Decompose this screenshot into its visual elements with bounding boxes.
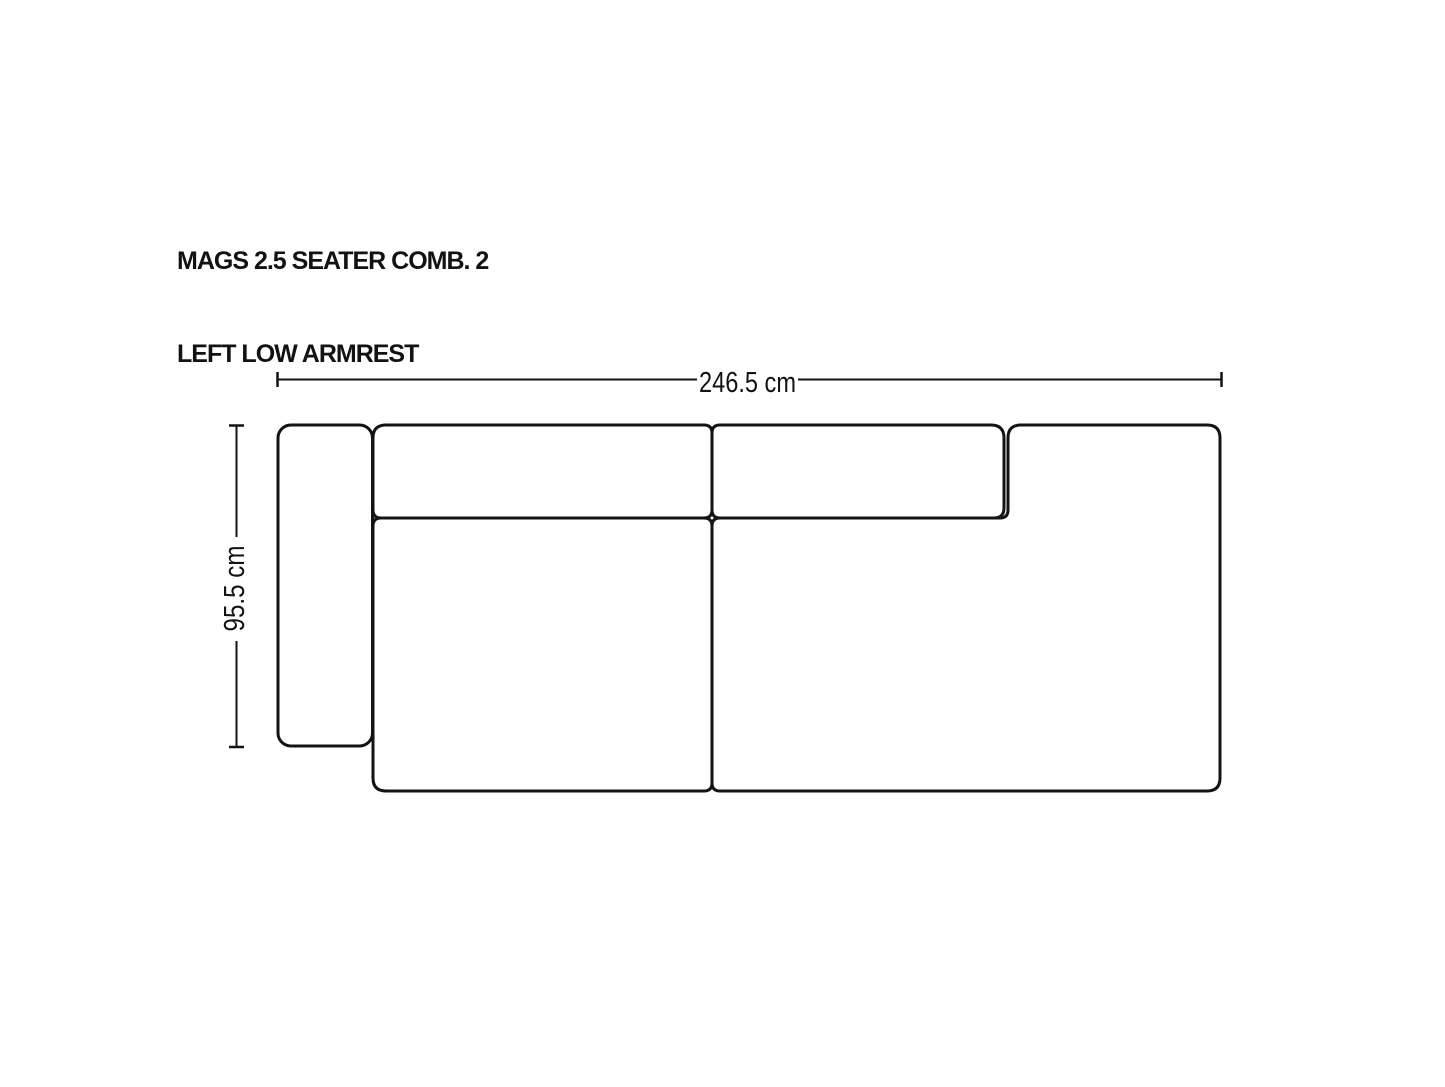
width-dimension: 246.5 cm xyxy=(278,367,1222,399)
width-dimension-label: 246.5 cm xyxy=(699,367,796,399)
diagram-page: MAGS 2.5 SEATER COMB. 2 LEFT LOW ARMREST… xyxy=(0,0,1445,1087)
left-backrest-cushion xyxy=(373,425,712,518)
depth-dimension-label: 95.5 cm xyxy=(219,546,251,632)
left-seat-module xyxy=(373,518,712,791)
armrest-module xyxy=(278,425,373,746)
sofa-dimension-diagram: 246.5 cm 95.5 cm xyxy=(0,0,1445,1087)
sofa-top-view-drawing xyxy=(278,425,1220,791)
right-backrest-cushion xyxy=(712,425,1004,518)
depth-dimension: 95.5 cm xyxy=(219,426,251,748)
